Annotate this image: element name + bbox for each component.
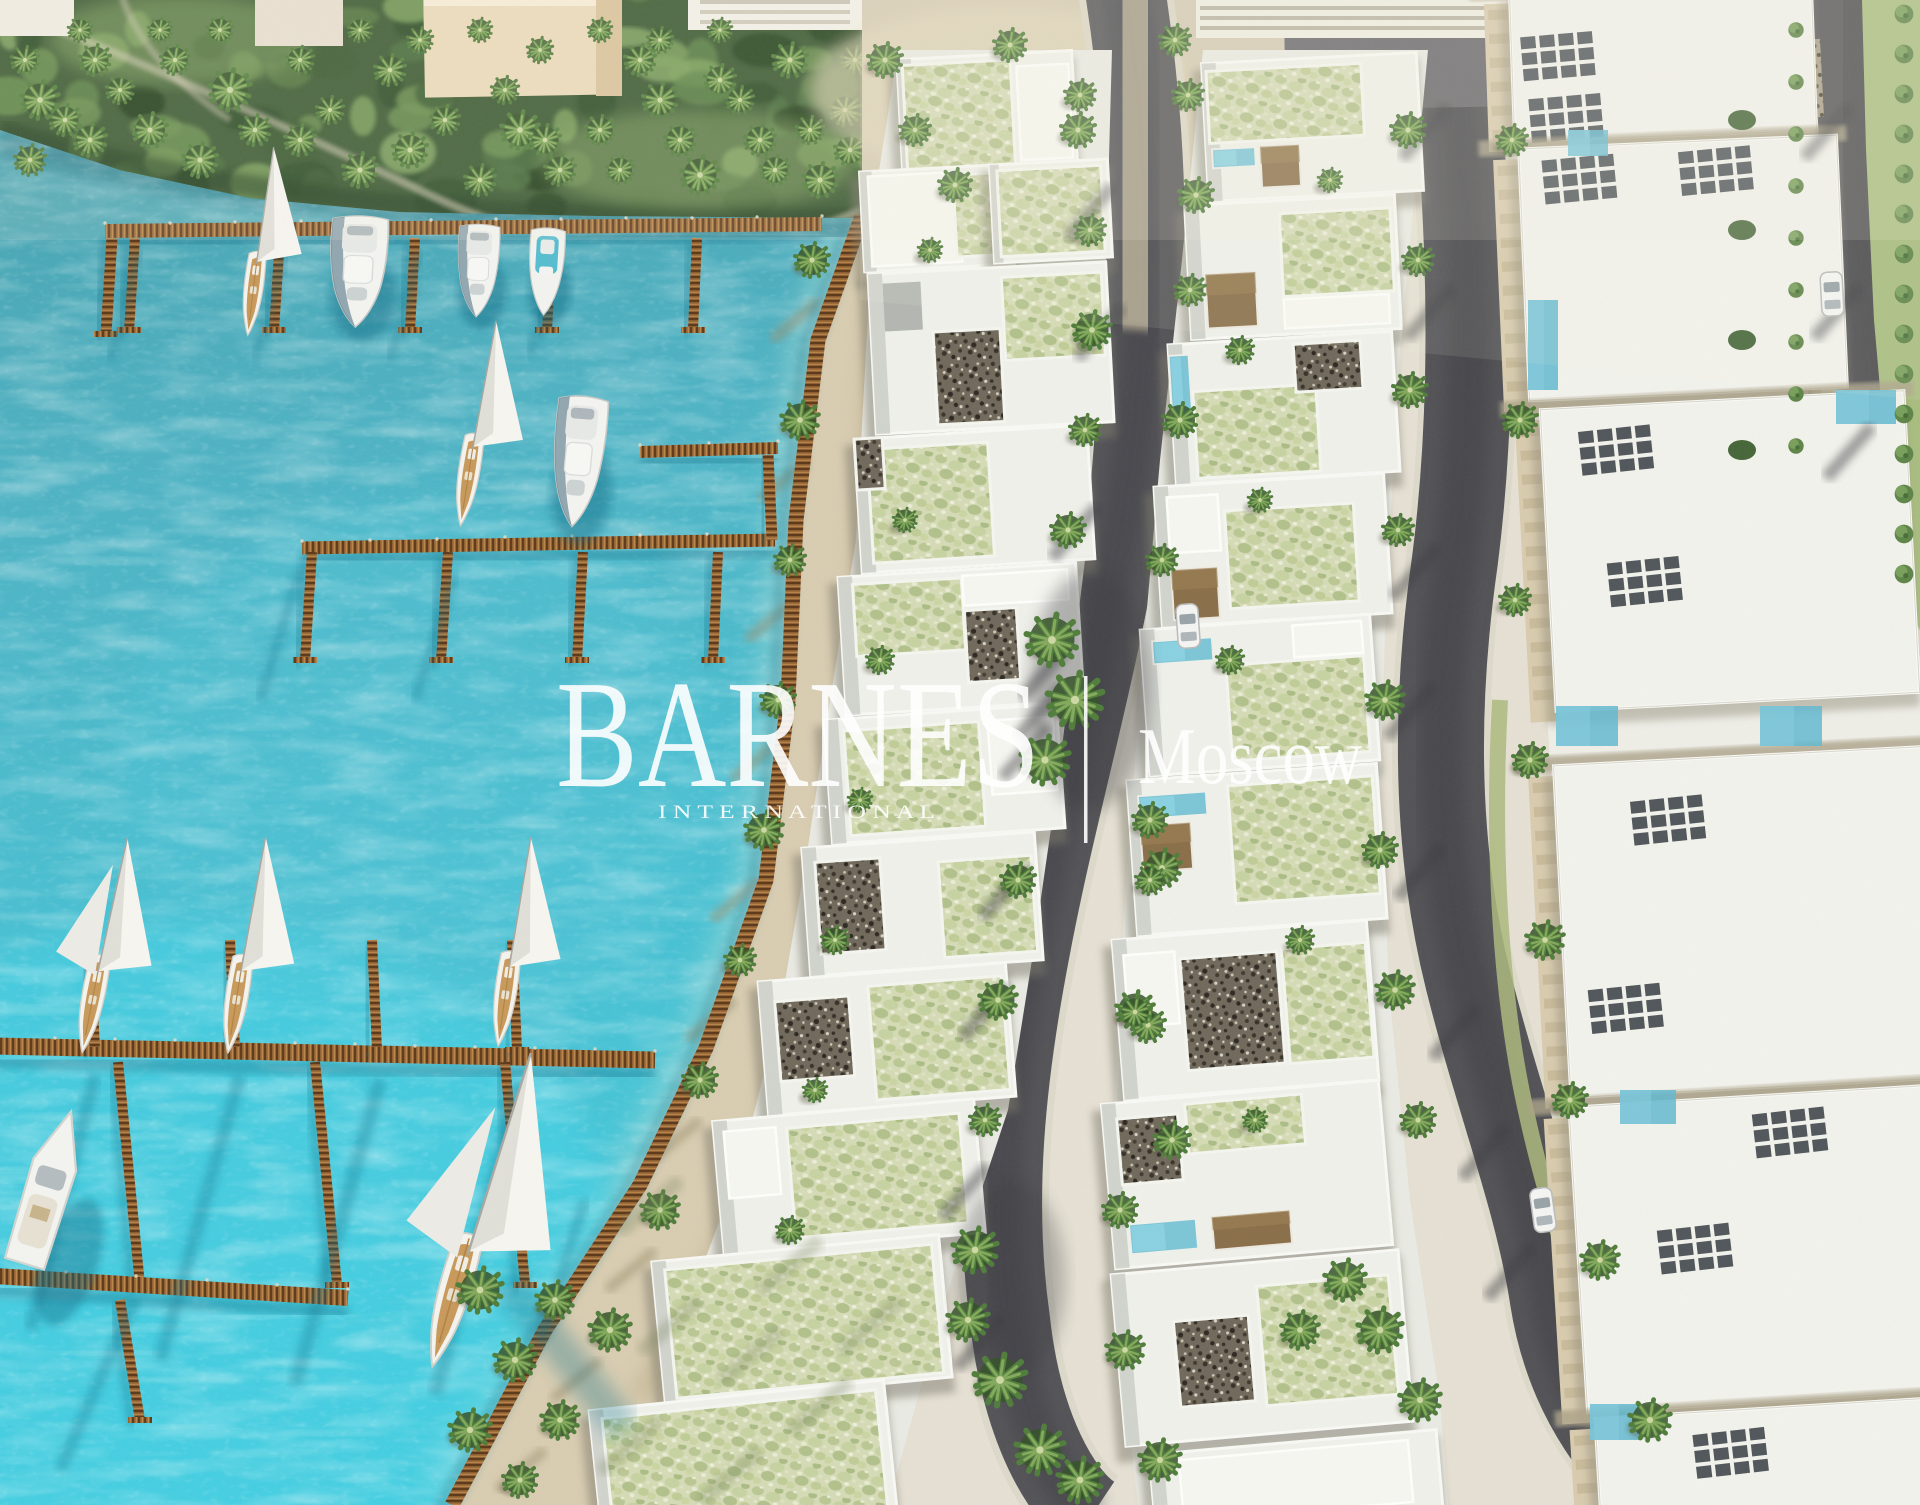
svg-text:Moscow: Moscow [1138, 713, 1362, 801]
svg-text:BARNES: BARNES [556, 650, 1040, 820]
svg-text:I N T E R N A T I O N A L: I N T E R N A T I O N A L [658, 802, 935, 823]
